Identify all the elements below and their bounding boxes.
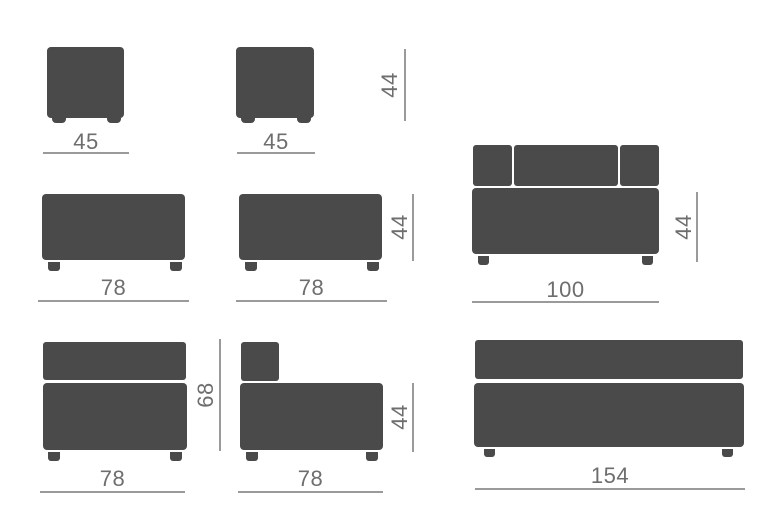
dimension-underline (43, 152, 129, 154)
furniture-foot (170, 262, 182, 271)
furniture-foot (642, 256, 653, 265)
furniture-dimension-diagram: 45 45 44 78 78 44 100 (0, 0, 773, 525)
bench-body (239, 194, 382, 260)
furniture-foot (484, 449, 495, 457)
width-label: 78 (40, 468, 185, 490)
height-dimension-line (696, 192, 698, 262)
furniture-foot (170, 452, 182, 461)
dimension-underline (40, 491, 185, 493)
dimension-underline (236, 300, 387, 302)
height-dimension-line (404, 49, 406, 121)
bench-top-cushion (475, 340, 743, 379)
width-label: 78 (238, 468, 383, 490)
width-label: 78 (38, 277, 189, 299)
height-label: 44 (379, 49, 401, 121)
furniture-foot (367, 262, 379, 271)
height-dimension-line (219, 339, 221, 451)
height-dimension-line (412, 194, 414, 261)
height-label: 44 (673, 192, 695, 262)
pouf-body (236, 47, 314, 118)
height-dimension-line (412, 383, 414, 452)
sofa-back-segment-left (473, 145, 512, 186)
furniture-foot (245, 262, 257, 271)
sofa-seat (472, 188, 659, 254)
furniture-foot (107, 116, 121, 123)
pouf-body (47, 47, 124, 118)
width-label: 45 (237, 131, 315, 153)
furniture-foot (48, 452, 60, 461)
furniture-foot (722, 449, 733, 457)
furniture-foot (48, 262, 60, 271)
width-label: 154 (475, 465, 745, 487)
height-label: 44 (389, 382, 411, 452)
height-label: 68 (195, 339, 217, 451)
sofa-back-segment-right (620, 145, 659, 186)
height-label: 44 (389, 193, 411, 261)
dimension-underline (237, 152, 315, 154)
dimension-underline (475, 488, 745, 490)
bench-body (42, 194, 185, 260)
furniture-foot (52, 116, 66, 123)
furniture-foot (246, 452, 258, 461)
dimension-underline (472, 301, 659, 303)
dimension-underline (38, 300, 189, 302)
furniture-foot (478, 256, 489, 265)
corner-armrest (241, 342, 279, 381)
furniture-foot (297, 116, 311, 123)
module-back-cushion (43, 342, 186, 380)
dimension-underline (238, 491, 383, 493)
furniture-foot (366, 452, 378, 461)
module-seat (43, 383, 187, 450)
width-label: 45 (43, 131, 129, 153)
width-label: 78 (236, 277, 387, 299)
sofa-back-segment-center (514, 145, 618, 186)
module-seat (240, 383, 383, 450)
width-label: 100 (472, 279, 659, 301)
bench-base (474, 383, 744, 447)
furniture-foot (241, 116, 255, 123)
